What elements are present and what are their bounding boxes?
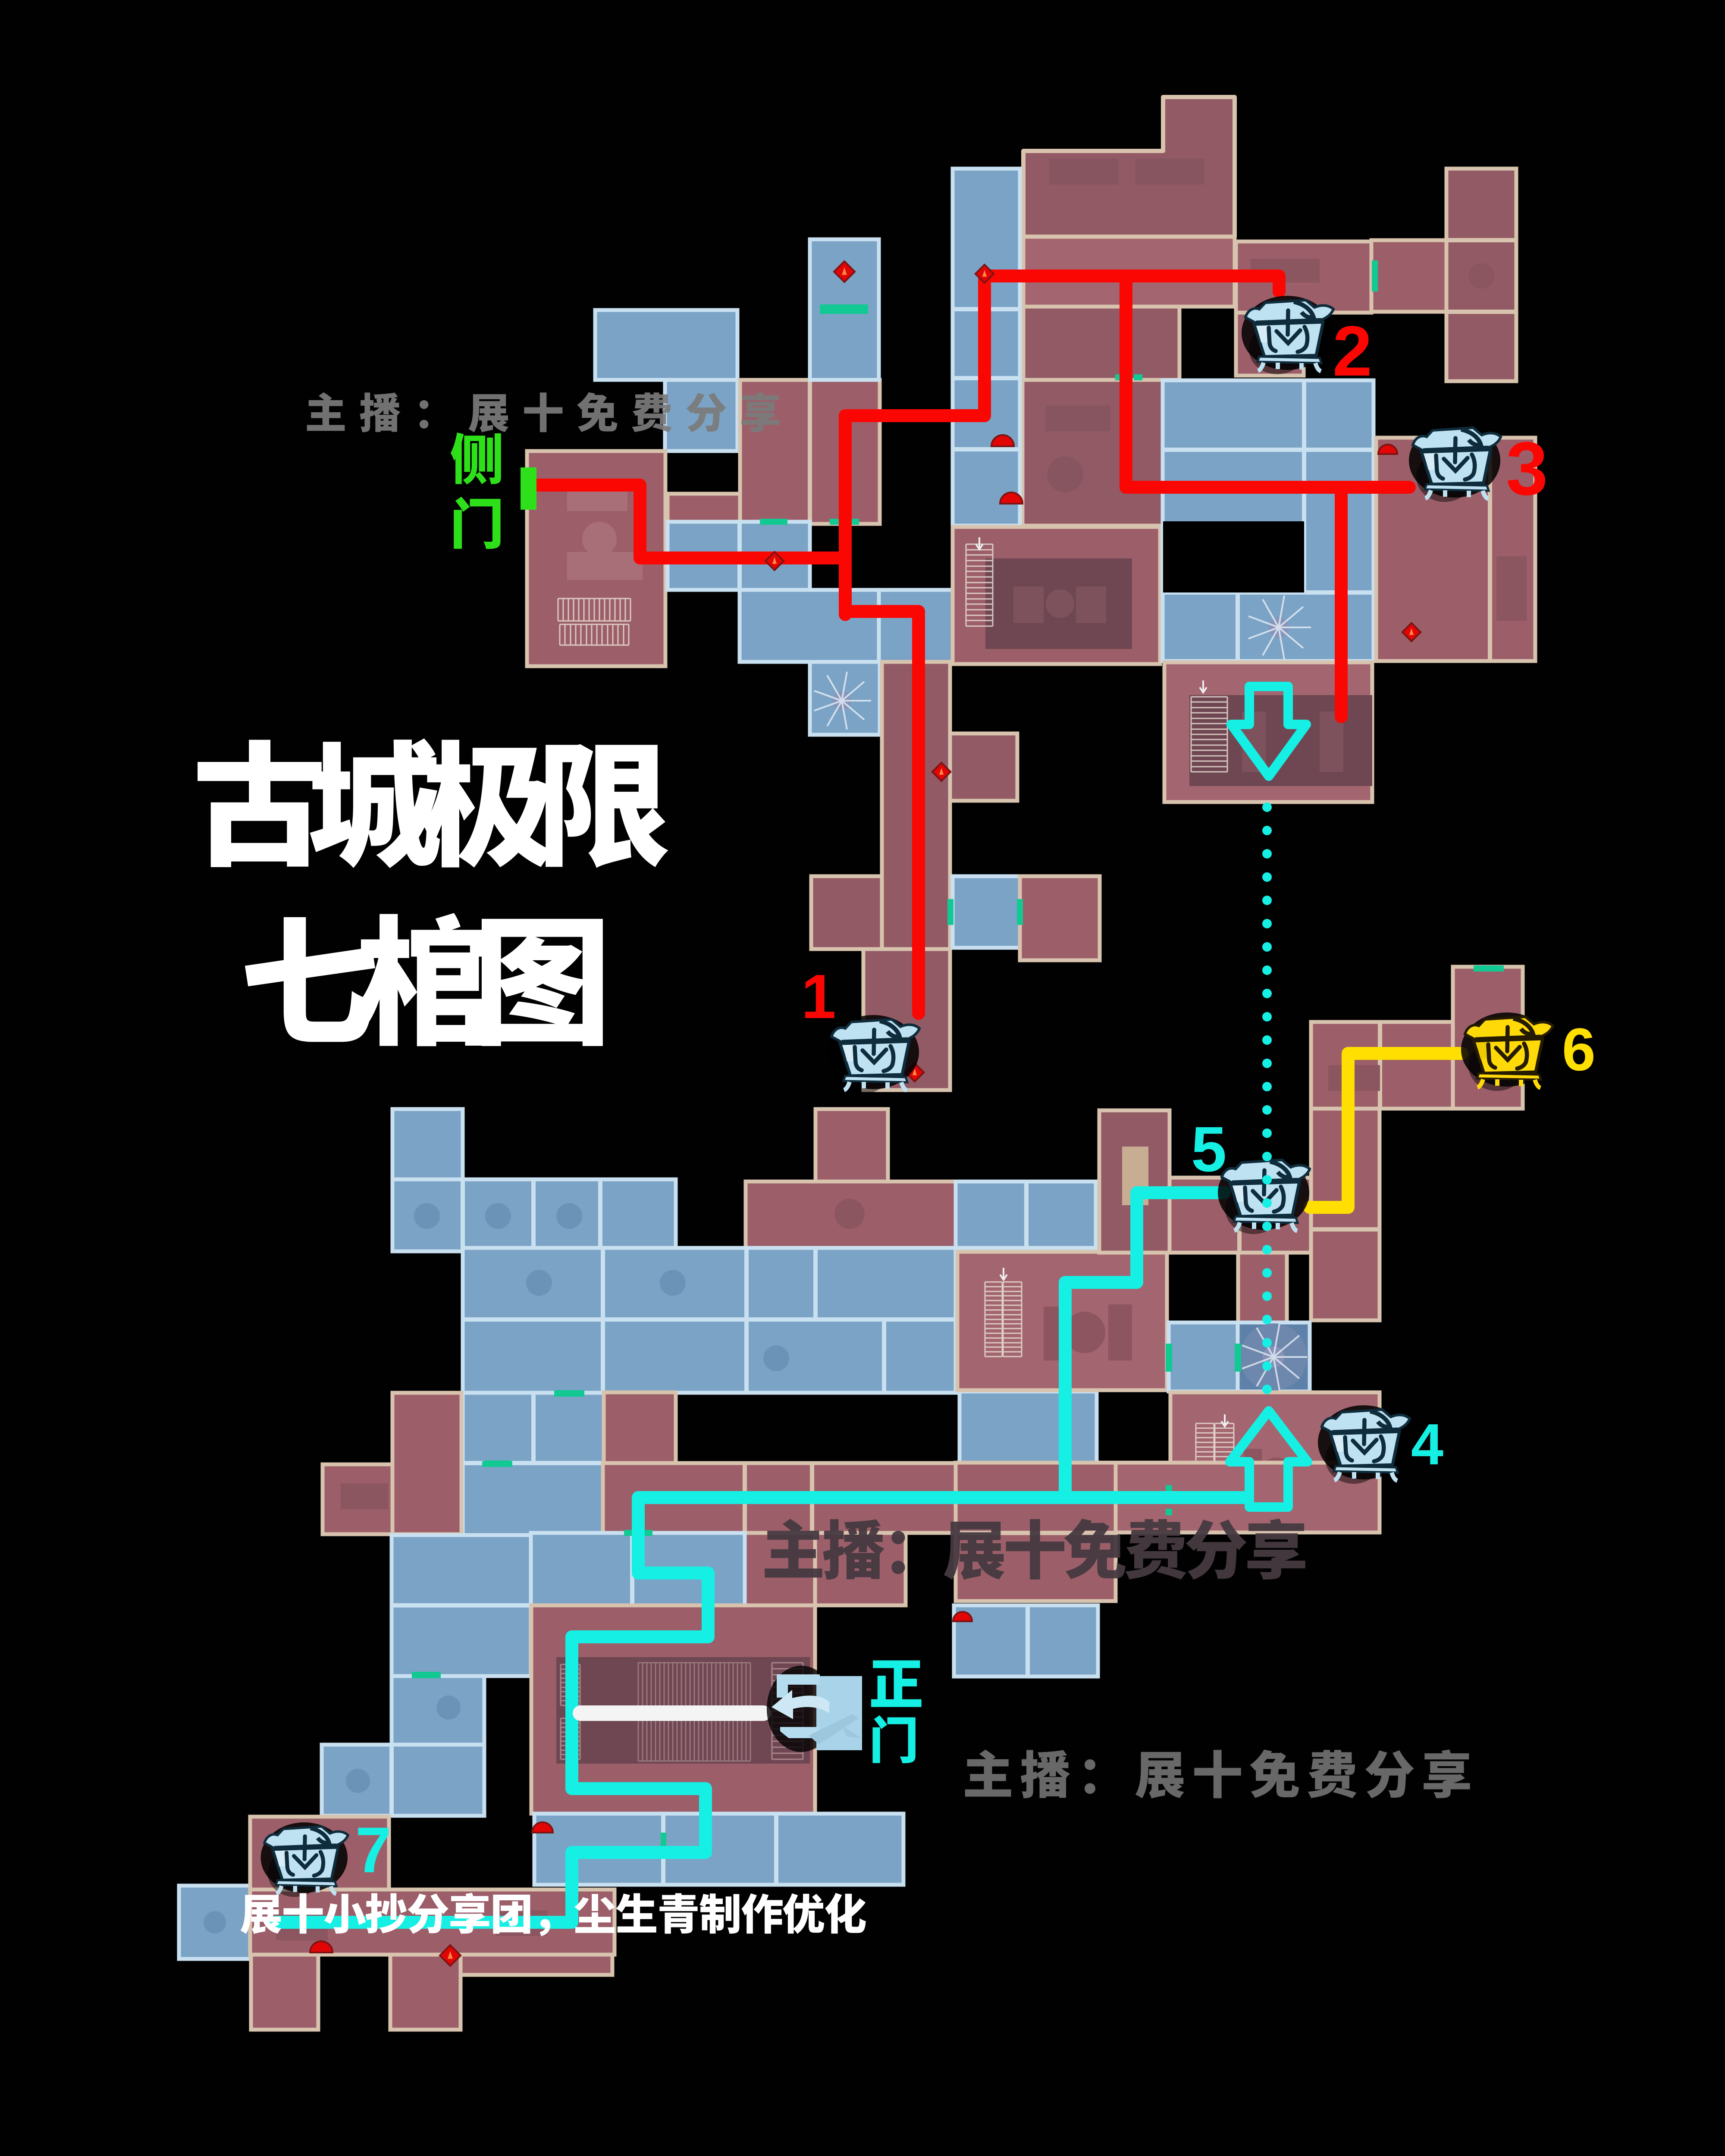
svg-text:6: 6 <box>1562 1015 1596 1083</box>
svg-text:1: 1 <box>801 962 836 1031</box>
svg-text:4: 4 <box>1411 1412 1443 1477</box>
svg-text:3: 3 <box>1506 427 1548 511</box>
svg-text:2: 2 <box>1333 311 1372 391</box>
svg-text:5: 5 <box>1191 1114 1226 1185</box>
svg-text:7: 7 <box>355 1814 391 1886</box>
